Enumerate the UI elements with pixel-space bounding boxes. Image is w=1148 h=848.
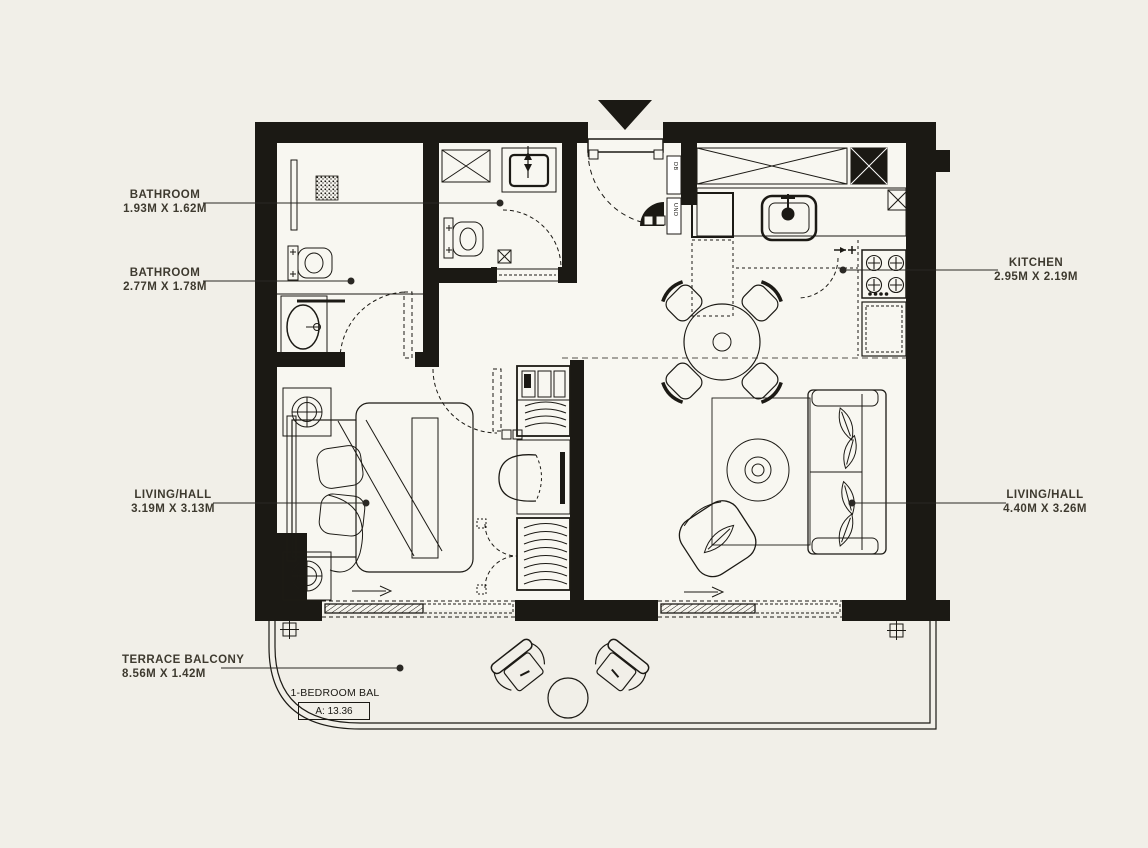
room-dims: 4.40M X 3.26M (975, 503, 1115, 517)
room-label-kitchen: KITCHEN 2.95M X 2.19M (966, 257, 1106, 284)
room-name: LIVING/HALL (103, 489, 243, 503)
room-dims: 3.19M X 3.13M (103, 503, 243, 517)
db-box-label: DB (672, 162, 678, 171)
room-dims: 2.95M X 2.19M (966, 271, 1106, 285)
room-label-living-hall-right: LIVING/HALL 4.40M X 3.26M (975, 489, 1115, 516)
unit-area-label: A: 13.36 (315, 706, 352, 717)
room-dims: 2.77M X 1.78M (95, 281, 235, 295)
grid-marker-icon (280, 620, 299, 639)
unit-type-label: 1-BEDROOM BAL (280, 687, 390, 699)
floor-plan-drawing (0, 0, 1148, 848)
und-box-label: UND (672, 203, 678, 216)
room-name: TERRACE BALCONY (122, 654, 282, 668)
grid-marker-icon (887, 621, 906, 640)
room-label-terrace: TERRACE BALCONY 8.56M X 1.42M (122, 654, 282, 681)
room-name: BATHROOM (95, 189, 235, 203)
column-icon (851, 148, 887, 184)
unit-area-box: A: 13.36 (298, 702, 370, 720)
room-name: LIVING/HALL (975, 489, 1115, 503)
shower-drain-icon (316, 176, 338, 200)
room-label-bathroom-2: BATHROOM 2.77M X 1.78M (95, 267, 235, 294)
entrance-marker-icon (598, 100, 652, 130)
floor-plan-page: BATHROOM 1.93M X 1.62M BATHROOM 2.77M X … (0, 0, 1148, 848)
room-dims: 8.56M X 1.42M (122, 668, 282, 682)
room-name: BATHROOM (95, 267, 235, 281)
outdoor-chair-icon (588, 636, 653, 698)
pocket-door (491, 267, 564, 283)
entry-door-leaf (588, 139, 663, 152)
room-name: KITCHEN (966, 257, 1106, 271)
outdoor-chair-icon (487, 636, 552, 698)
room-dims: 1.93M X 1.62M (95, 203, 235, 217)
room-label-bathroom-1: BATHROOM 1.93M X 1.62M (95, 189, 235, 216)
outdoor-table-icon (548, 678, 588, 718)
room-label-living-hall-left: LIVING/HALL 3.19M X 3.13M (103, 489, 243, 516)
